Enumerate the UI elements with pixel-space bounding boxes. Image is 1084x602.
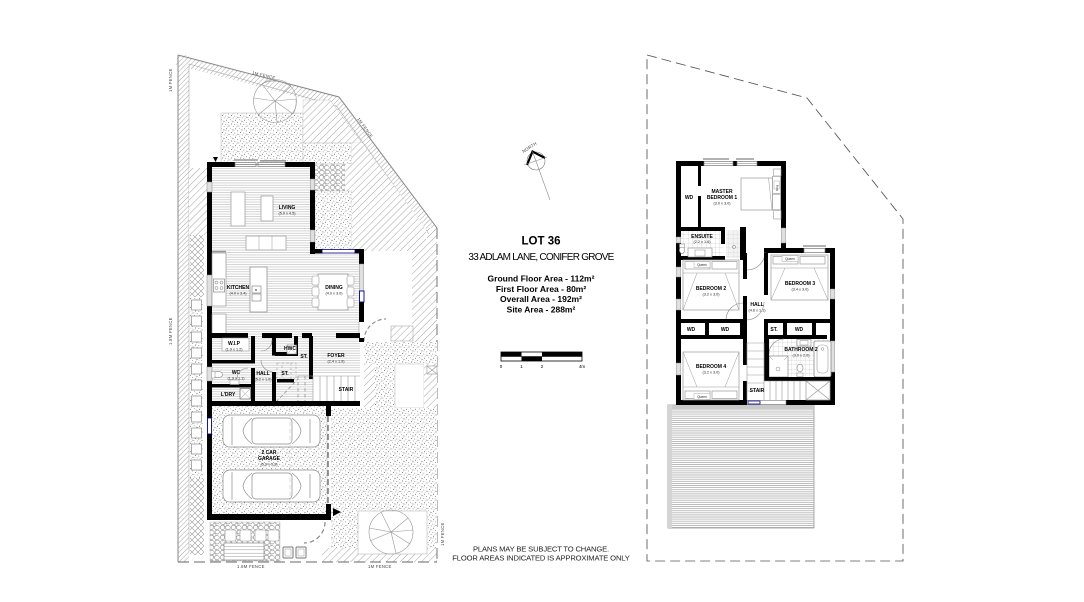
svg-text:WC: WC (232, 370, 241, 376)
svg-text:Queen: Queen (697, 395, 707, 399)
svg-text:1.8M FENCE: 1.8M FENCE (237, 564, 265, 569)
svg-text:BEDROOM 2: BEDROOM 2 (696, 286, 727, 292)
svg-text:(3.4 x 3.0): (3.4 x 3.0) (791, 288, 809, 292)
svg-text:(3.0 x 3.0): (3.0 x 3.0) (713, 202, 731, 206)
svg-text:DINING: DINING (325, 285, 343, 291)
svg-text:FOYER: FOYER (327, 353, 345, 359)
svg-text:WD: WD (795, 327, 804, 333)
svg-text:(2.4 x 1.9): (2.4 x 1.9) (327, 360, 345, 364)
svg-text:1M FENCE: 1M FENCE (368, 564, 392, 569)
svg-text:(4.0 x 3.0): (4.0 x 3.0) (325, 292, 343, 296)
svg-text:WD: WD (721, 327, 730, 333)
svg-text:1M FENCE: 1M FENCE (440, 522, 445, 546)
svg-text:33 ADLAM LANE, CONIFER GROVE: 33 ADLAM LANE, CONIFER GROVE (468, 252, 614, 263)
svg-text:(3.2 x 3.0): (3.2 x 3.0) (702, 293, 720, 297)
svg-text:Queen: Queen (697, 263, 707, 267)
svg-text:First Floor Area - 80m²: First Floor Area - 80m² (496, 284, 587, 294)
svg-text:(1.9 x 1.2): (1.9 x 1.2) (225, 348, 243, 352)
svg-text:BEDROOM 4: BEDROOM 4 (696, 364, 727, 370)
svg-text:Overall Area - 192m²: Overall Area - 192m² (500, 294, 582, 304)
svg-text:STAIR: STAIR (339, 387, 354, 393)
svg-text:(2.2 x 1.6): (2.2 x 1.6) (693, 240, 711, 244)
svg-text:King: King (775, 185, 779, 191)
svg-text:(4.0 x 3.4): (4.0 x 3.4) (229, 292, 247, 296)
svg-text:KITCHEN: KITCHEN (227, 285, 250, 291)
svg-text:W.I.P: W.I.P (228, 341, 241, 347)
svg-text:(5.2 x 1.0): (5.2 x 1.0) (254, 378, 272, 382)
svg-text:(5.0 x 4.5): (5.0 x 4.5) (278, 212, 296, 216)
svg-text:HALL: HALL (256, 371, 269, 377)
svg-text:Ground Floor Area - 112m²: Ground Floor Area - 112m² (488, 274, 595, 284)
svg-text:4m: 4m (579, 364, 586, 369)
svg-text:STAIR: STAIR (750, 388, 765, 394)
svg-text:(5.9 x 5.9): (5.9 x 5.9) (260, 463, 278, 467)
svg-text:(4.6 x 1.1): (4.6 x 1.1) (748, 309, 766, 313)
svg-text:BATHROOM 2: BATHROOM 2 (784, 347, 817, 353)
svg-text:WD: WD (687, 327, 696, 333)
svg-text:WD: WD (685, 195, 694, 201)
svg-text:PLANS MAY BE SUBJECT TO CHANGE: PLANS MAY BE SUBJECT TO CHANGE. (473, 544, 609, 553)
svg-text:(3.0 x 2.0): (3.0 x 2.0) (792, 354, 810, 358)
svg-text:HWC: HWC (284, 346, 296, 352)
svg-text:BEDROOM 3: BEDROOM 3 (785, 281, 816, 287)
svg-text:(1.9 x 1.1): (1.9 x 1.1) (227, 377, 245, 381)
svg-text:BEDROOM 1: BEDROOM 1 (707, 195, 738, 201)
svg-text:LOT 36: LOT 36 (522, 236, 561, 248)
svg-text:ST.: ST. (300, 354, 308, 360)
svg-text:LIVING: LIVING (279, 205, 296, 211)
svg-text:Site Area - 288m²: Site Area - 288m² (507, 305, 576, 315)
svg-text:L'DRY: L'DRY (221, 392, 236, 398)
svg-text:GARAGE: GARAGE (258, 456, 281, 462)
svg-text:(3.2 x 3.0): (3.2 x 3.0) (702, 371, 720, 375)
svg-text:1.8M FENCE: 1.8M FENCE (168, 317, 173, 345)
svg-text:HALL: HALL (750, 302, 763, 308)
svg-text:FLOOR AREAS INDICATED IS APPRO: FLOOR AREAS INDICATED IS APPROXIMATE ONL… (452, 553, 629, 562)
svg-text:Queen: Queen (785, 257, 795, 261)
svg-text:ST.: ST. (281, 371, 289, 377)
svg-text:1M FENCE: 1M FENCE (168, 68, 173, 92)
svg-text:ST.: ST. (770, 327, 778, 333)
